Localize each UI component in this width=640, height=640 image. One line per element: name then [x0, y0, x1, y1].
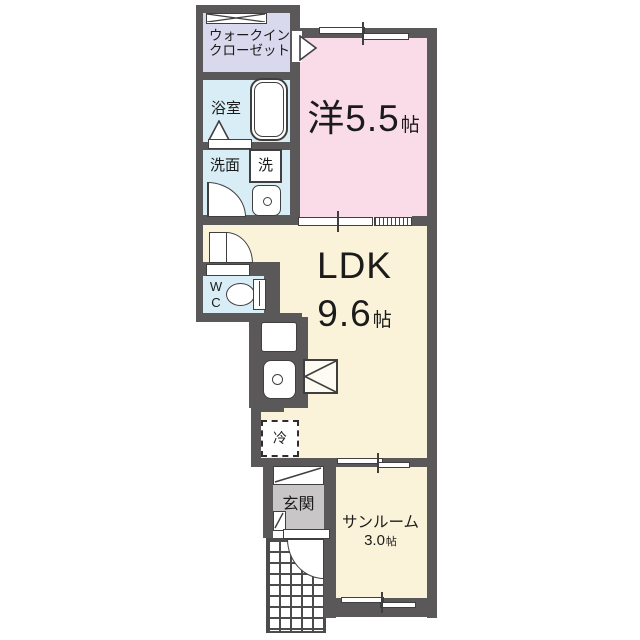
refrigerator-label: 冷	[261, 420, 299, 457]
window-tick	[362, 22, 364, 45]
bathroom-label: 浴室	[207, 99, 245, 119]
kitchen-counter-icon	[261, 322, 297, 352]
walk-in-closet-label: ウォークインクローゼット	[209, 25, 293, 61]
washer-label: 洗	[249, 149, 282, 183]
entrance-label: 玄関	[273, 494, 324, 516]
sliding-door-icon	[298, 217, 373, 226]
wall-segment	[427, 28, 437, 618]
toilet-icon	[226, 279, 267, 311]
sliding-door-track-icon	[374, 217, 412, 226]
wall-segment	[196, 5, 300, 13]
washbasin-icon	[252, 185, 281, 216]
window-icon	[341, 597, 384, 603]
ldk-label: LDK	[302, 244, 407, 288]
wc-label: WC	[206, 277, 226, 313]
sunroom-label: サンルーム	[334, 513, 427, 533]
window-tick	[337, 211, 339, 232]
sunroom-size-label: 3.0帖	[334, 533, 427, 553]
window-icon	[363, 33, 409, 40]
wall-segment	[196, 72, 300, 80]
window-icon	[380, 602, 416, 608]
bath-door-icon	[208, 120, 231, 141]
western-room-label: 洋5.5帖	[300, 98, 427, 150]
closet-door-icon	[299, 35, 318, 61]
washroom-label: 洗面	[205, 156, 245, 176]
ldk-size-label: 9.6帖	[302, 293, 407, 339]
bathtub-icon	[250, 78, 288, 141]
entrance-step-icon	[273, 466, 324, 485]
wall-segment	[412, 216, 427, 226]
counter-table-icon	[303, 359, 338, 394]
kitchen-sink-icon	[263, 360, 296, 399]
wall-segment	[196, 5, 203, 322]
bath-door-threshold	[208, 139, 252, 149]
wc-door-icon	[206, 264, 250, 276]
wall-segment	[263, 467, 273, 538]
hall-door-leaf	[209, 232, 227, 263]
front-door-leaf	[283, 529, 330, 539]
window-icon	[377, 462, 410, 468]
window-tick	[381, 592, 383, 613]
floor-plan: ウォークインクローゼット 浴室 洗面 洗 洋5.5帖 LDK 9.6帖 WC 冷…	[0, 0, 640, 640]
window-tick	[377, 453, 379, 473]
closet-hanger-icon	[206, 13, 267, 24]
window-icon	[319, 27, 365, 34]
